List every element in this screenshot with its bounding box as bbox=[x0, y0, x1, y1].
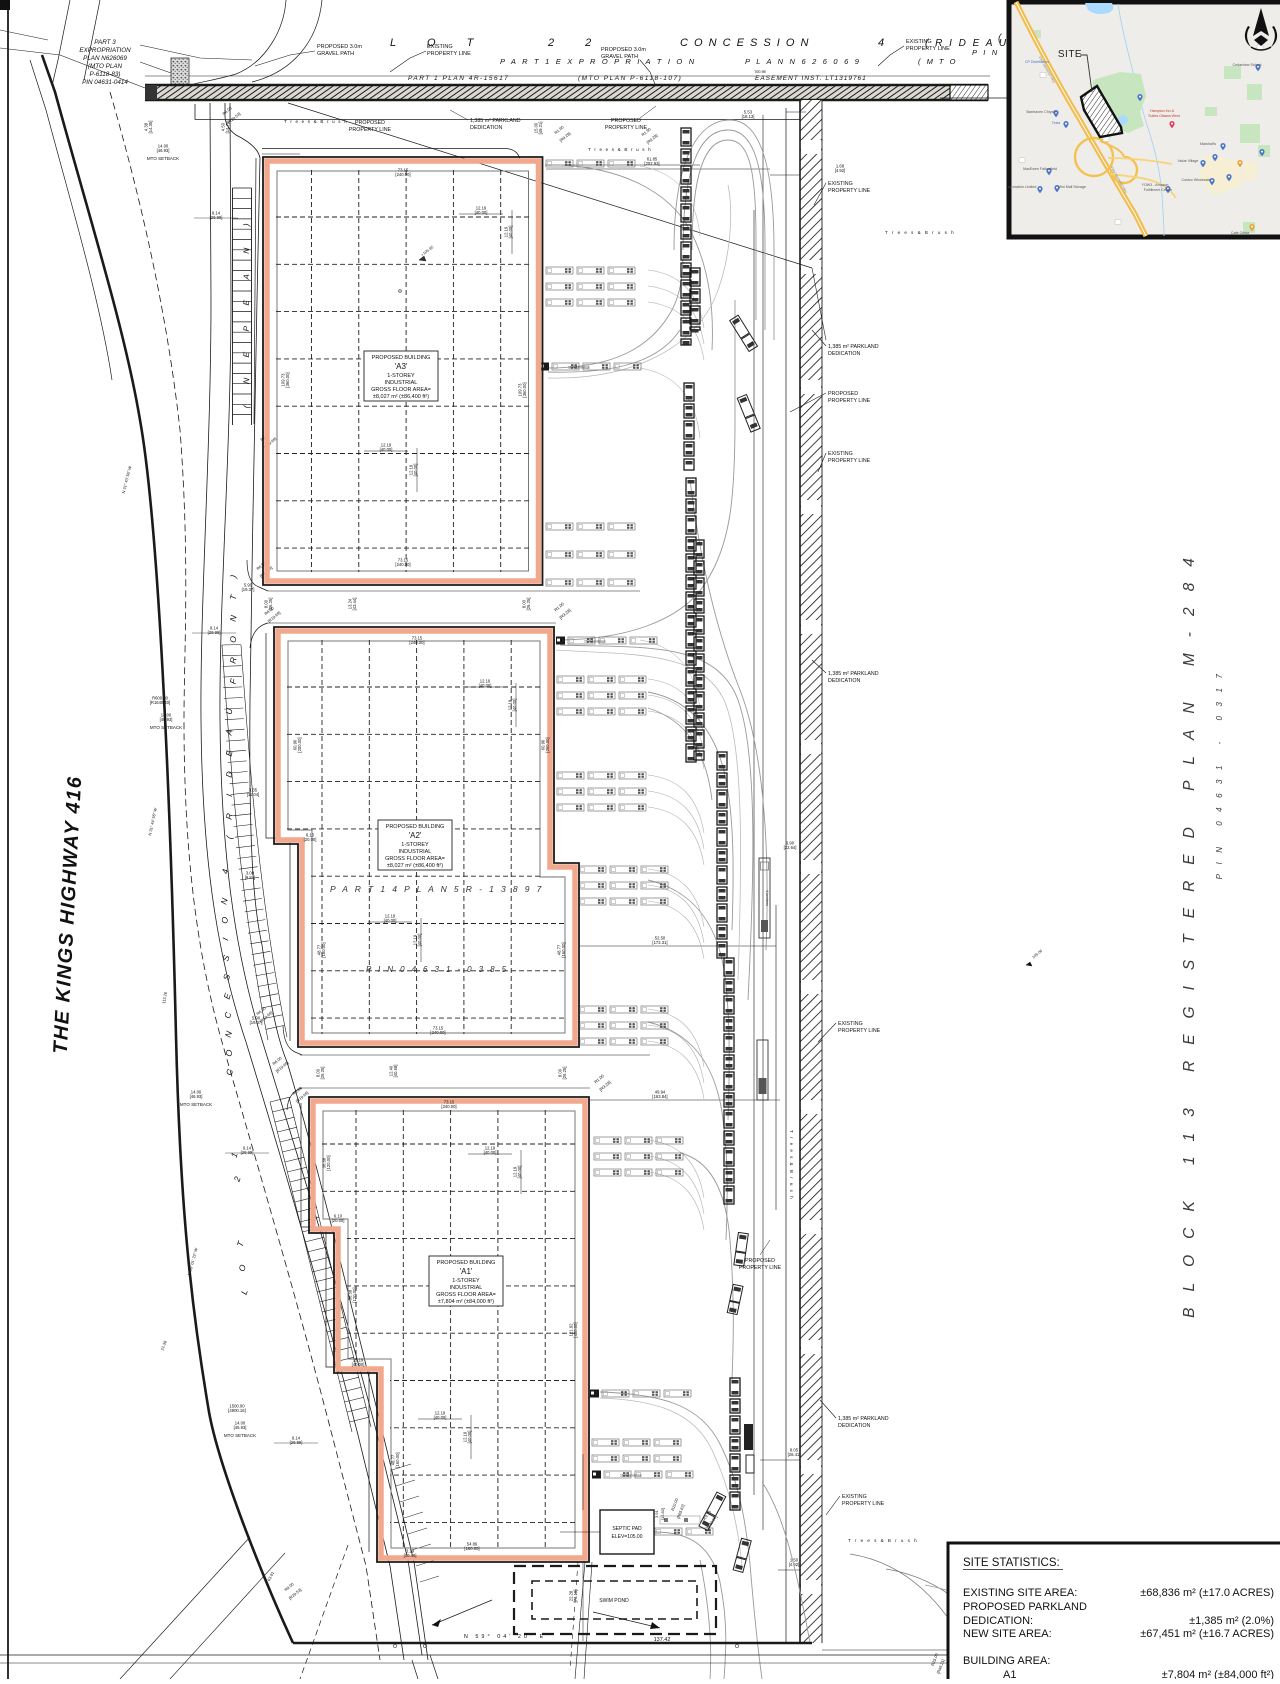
svg-text:PIN 04631 - 0317: PIN 04631 - 0317 bbox=[1215, 665, 1224, 880]
svg-text:[26.25]: [26.25] bbox=[320, 1067, 325, 1080]
svg-text:[10.46]: [10.46] bbox=[404, 1553, 417, 1558]
svg-text:GROSS FLOOR AREA=: GROSS FLOOR AREA= bbox=[371, 387, 431, 393]
svg-text:±7,804 m² (±84,000 ft²): ±7,804 m² (±84,000 ft²) bbox=[1162, 1669, 1274, 1679]
svg-text:700.98: 700.98 bbox=[754, 70, 766, 74]
svg-text:PIN 04631-0414: PIN 04631-0414 bbox=[82, 79, 128, 86]
svg-text:[46.93]: [46.93] bbox=[157, 148, 170, 153]
svg-text:Mini Mall Storage: Mini Mall Storage bbox=[1058, 185, 1086, 189]
svg-text:PROPOSED: PROPOSED bbox=[355, 120, 385, 126]
svg-text:[200.00]: [200.00] bbox=[545, 737, 550, 752]
svg-text:PART 3: PART 3 bbox=[94, 39, 116, 46]
svg-text:[19.37]: [19.37] bbox=[242, 587, 255, 592]
svg-text:[26.25]: [26.25] bbox=[562, 1067, 567, 1080]
svg-text:orporation Limited: orporation Limited bbox=[1008, 185, 1037, 189]
svg-text:1-STOREY: 1-STOREY bbox=[452, 1278, 480, 1284]
svg-text:137.42: 137.42 bbox=[654, 1637, 671, 1643]
svg-text:1-STOREY: 1-STOREY bbox=[401, 842, 429, 848]
svg-text:PROPERTY LINE: PROPERTY LINE bbox=[828, 398, 871, 404]
svg-text:SWIM POND: SWIM POND bbox=[599, 1598, 629, 1604]
svg-text:MacEwen Fallowfield: MacEwen Fallowfield bbox=[1023, 167, 1057, 171]
svg-text:YOW3 - Amazon: YOW3 - Amazon bbox=[1142, 183, 1169, 187]
svg-text:DEDICATION: DEDICATION bbox=[828, 351, 860, 357]
svg-text:1-STOREY: 1-STOREY bbox=[387, 373, 415, 379]
svg-text:[26.41]: [26.41] bbox=[788, 1452, 801, 1457]
svg-text:GRAVEL PATH: GRAVEL PATH bbox=[317, 51, 354, 57]
svg-text:Value Village: Value Village bbox=[1178, 159, 1199, 163]
svg-text:A: A bbox=[242, 274, 252, 281]
svg-text:PROPOSED BUILDING: PROPOSED BUILDING bbox=[437, 1260, 496, 1266]
svg-text:SITE STATISTICS:: SITE STATISTICS: bbox=[963, 1557, 1060, 1569]
svg-text:N: N bbox=[242, 377, 251, 384]
svg-text:[20.00]: [20.00] bbox=[304, 837, 317, 842]
svg-text:±8,027 m² (±86,400 ft²): ±8,027 m² (±86,400 ft²) bbox=[387, 863, 443, 869]
svg-text:MTO SETBACK: MTO SETBACK bbox=[224, 1433, 256, 1438]
svg-text:PROPERTY LINE: PROPERTY LINE bbox=[838, 1028, 881, 1034]
svg-text:EXISTING: EXISTING bbox=[828, 181, 853, 187]
svg-text:Fulfillment Center: Fulfillment Center bbox=[1144, 188, 1173, 192]
svg-text:INDUSTRIAL: INDUSTRIAL bbox=[385, 380, 418, 386]
svg-text:PROPOSED BUILDING: PROPOSED BUILDING bbox=[372, 355, 431, 361]
svg-text:PLAN N626069: PLAN N626069 bbox=[83, 55, 127, 62]
svg-text:[11.04]: [11.04] bbox=[247, 792, 260, 797]
svg-text:[4900.16]: [4900.16] bbox=[228, 1408, 245, 1413]
svg-text:N 59° 04′ 20″ E: N 59° 04′ 20″ E bbox=[464, 1634, 546, 1640]
svg-text:PROPERTY LINE: PROPERTY LINE bbox=[349, 127, 392, 133]
svg-text:[160.00]: [160.00] bbox=[321, 942, 326, 957]
svg-text:[240.00]: [240.00] bbox=[409, 640, 424, 645]
svg-text:MTO SETBACK: MTO SETBACK bbox=[180, 1102, 212, 1107]
svg-text:[160.00]: [160.00] bbox=[395, 1452, 400, 1467]
svg-text:'A1': 'A1' bbox=[460, 1267, 473, 1276]
svg-text:1,385 m² PARKLAND: 1,385 m² PARKLAND bbox=[828, 344, 879, 350]
svg-text:BUILDING AREA:: BUILDING AREA: bbox=[963, 1655, 1050, 1667]
svg-text:11 4-tandems: 11 4-tandems bbox=[568, 366, 590, 370]
svg-text:BLOCK 113 REGISTERED PLA: BLOCK 113 REGISTERED PLAN M-284 bbox=[1181, 542, 1198, 1318]
svg-text:PROPOSED BUILDING: PROPOSED BUILDING bbox=[386, 824, 445, 830]
svg-text:T r e e s & B r u s h: T r e e s & B r u s h bbox=[789, 1130, 794, 1200]
svg-text:4: 4 bbox=[878, 37, 884, 49]
svg-text:[360.00]: [360.00] bbox=[522, 382, 527, 397]
svg-text:T r e e s & B r u s h: T r e e s & B r u s h bbox=[885, 230, 955, 235]
svg-text:1,385 m² PARKLAND: 1,385 m² PARKLAND bbox=[838, 1416, 889, 1422]
svg-text:[120.00]: [120.00] bbox=[326, 1155, 331, 1170]
svg-text:GROSS FLOOR AREA=: GROSS FLOOR AREA= bbox=[385, 856, 445, 862]
svg-text:( M T O: ( M T O bbox=[918, 57, 957, 66]
svg-text:P L A N N 6 2 6 0 6 9: P L A N N 6 2 6 0 6 9 bbox=[745, 57, 861, 66]
svg-text:EXISTING: EXISTING bbox=[842, 1494, 867, 1500]
svg-text:[202.93]: [202.93] bbox=[644, 161, 659, 166]
svg-text:[360.00]: [360.00] bbox=[285, 372, 290, 387]
svg-text:Hampton Inn &: Hampton Inn & bbox=[1150, 109, 1175, 113]
svg-text:INDUSTRIAL: INDUSTRIAL bbox=[450, 1285, 483, 1291]
svg-text:SITE: SITE bbox=[1058, 49, 1082, 60]
svg-text:[73.10]: [73.10] bbox=[573, 1590, 578, 1603]
svg-text:[240.00]: [240.00] bbox=[430, 1030, 445, 1035]
svg-text:[29.99]: [29.99] bbox=[210, 215, 223, 220]
svg-text:[240.00]: [240.00] bbox=[395, 562, 410, 567]
svg-text:EXPROPRIATION: EXPROPRIATION bbox=[79, 47, 131, 54]
svg-text:[46.93]: [46.93] bbox=[190, 1094, 203, 1099]
svg-text:PROPERTY LINE: PROPERTY LINE bbox=[906, 46, 950, 52]
svg-text:[29.99]: [29.99] bbox=[208, 630, 221, 635]
svg-text:Barrhaven Chrysler: Barrhaven Chrysler bbox=[1027, 110, 1059, 114]
svg-text:Tesla: Tesla bbox=[1052, 121, 1060, 125]
svg-text:[22.64]: [22.64] bbox=[784, 845, 797, 850]
svg-text:P I N 0 4 6 3 1 - 0 3 8: P I N 0 4 6 3 1 - 0 3 8 5 bbox=[366, 965, 508, 974]
svg-text:[240.00]: [240.00] bbox=[395, 172, 410, 177]
svg-text:PROPERTY LINE: PROPERTY LINE bbox=[828, 458, 871, 464]
svg-text:±8,027 m² (±86,400 ft²): ±8,027 m² (±86,400 ft²) bbox=[373, 394, 429, 400]
svg-text:Suites Ottawa West: Suites Ottawa West bbox=[1148, 114, 1180, 118]
svg-text:EXISTING: EXISTING bbox=[828, 451, 853, 457]
svg-text:EXISTING: EXISTING bbox=[427, 44, 453, 50]
svg-text:P A R T 1 4 P L A N 5: P A R T 1 4 P L A N 5 R - 1 3 8 9 7 bbox=[330, 884, 544, 894]
svg-text:PROPOSED: PROPOSED bbox=[745, 1258, 775, 1264]
svg-text:EXISTING: EXISTING bbox=[906, 39, 932, 45]
svg-text:A1: A1 bbox=[1003, 1669, 1016, 1679]
svg-text:EXISTING SITE AREA:: EXISTING SITE AREA: bbox=[963, 1587, 1077, 1599]
svg-text:±67,451 m² (±16.7 ACRES): ±67,451 m² (±16.7 ACRES) bbox=[1140, 1628, 1274, 1640]
svg-text:11 4-tandems: 11 4-tandems bbox=[620, 1474, 642, 1478]
svg-text:PROPOSED: PROPOSED bbox=[611, 118, 641, 124]
svg-text:[14.35]: [14.35] bbox=[148, 121, 153, 134]
svg-text:[9.84]: [9.84] bbox=[245, 875, 255, 880]
svg-text:GROSS FLOOR AREA=: GROSS FLOOR AREA= bbox=[436, 1292, 496, 1298]
svg-text:2 2: 2 2 bbox=[547, 37, 605, 49]
svg-text:[29.99]: [29.99] bbox=[241, 1150, 254, 1155]
svg-text:±7,804 m² (±84,000 ft²): ±7,804 m² (±84,000 ft²) bbox=[438, 1299, 494, 1305]
svg-text:[240.00]: [240.00] bbox=[441, 1104, 456, 1109]
svg-text:[R1640.40]: [R1640.40] bbox=[150, 700, 171, 705]
svg-text:[29.99]: [29.99] bbox=[290, 1440, 303, 1445]
svg-text:[163.84]: [163.84] bbox=[652, 1094, 667, 1099]
svg-text:PROPERTY LINE: PROPERTY LINE bbox=[739, 1265, 782, 1271]
svg-text:PROPOSED: PROPOSED bbox=[828, 391, 858, 397]
svg-text:3.91: 3.91 bbox=[654, 1509, 659, 1518]
svg-text:[20.00]: [20.00] bbox=[332, 1218, 345, 1223]
svg-text:[46.93]: [46.93] bbox=[160, 717, 173, 722]
svg-text:'A3': 'A3' bbox=[395, 362, 408, 371]
svg-text:GRAVEL PATH: GRAVEL PATH bbox=[601, 54, 638, 60]
svg-text:(MTO PLAN: (MTO PLAN bbox=[88, 63, 123, 70]
svg-text:MTO SETBACK: MTO SETBACK bbox=[150, 725, 182, 730]
svg-text:SEPTIC PAD: SEPTIC PAD bbox=[612, 1526, 642, 1532]
svg-text:[4.92]: [4.92] bbox=[835, 168, 845, 173]
svg-text:Cedarview School: Cedarview School bbox=[1233, 63, 1262, 67]
svg-text:NEW SITE AREA:: NEW SITE AREA: bbox=[963, 1628, 1052, 1640]
svg-text:PROPERTY LINE: PROPERTY LINE bbox=[427, 51, 471, 57]
svg-text:Marshall's: Marshall's bbox=[1200, 142, 1216, 146]
svg-text:[26.25]: [26.25] bbox=[526, 598, 531, 611]
svg-text:[400.00]: [400.00] bbox=[573, 1322, 578, 1337]
svg-text:INDUSTRIAL: INDUSTRIAL bbox=[399, 849, 432, 855]
svg-text:EXISTING: EXISTING bbox=[838, 1021, 863, 1027]
svg-text:[160.00]: [160.00] bbox=[561, 942, 566, 957]
svg-text:C O N C E S S I O N: C O N C E S S I O N bbox=[680, 37, 810, 49]
svg-text:[49.21]: [49.21] bbox=[538, 122, 543, 135]
svg-text:P A R T 1 E X P R O P R I: P A R T 1 E X P R O P R I A T I O N bbox=[500, 57, 696, 66]
svg-text:PROPERTY LINE: PROPERTY LINE bbox=[605, 125, 648, 131]
svg-text:1,385 m² PARKLAND: 1,385 m² PARKLAND bbox=[470, 118, 521, 124]
svg-text:PROPERTY LINE: PROPERTY LINE bbox=[828, 188, 871, 194]
svg-text:±1,385 m² (2.0%): ±1,385 m² (2.0%) bbox=[1189, 1615, 1274, 1627]
svg-text:Cafe Crista: Cafe Crista bbox=[1231, 231, 1249, 235]
svg-text:P I N: P I N bbox=[972, 48, 999, 57]
svg-text:[12.82]: [12.82] bbox=[660, 1508, 665, 1520]
svg-text:[18.13]: [18.13] bbox=[742, 114, 755, 119]
svg-text:11 4-tandems: 11 4-tandems bbox=[584, 640, 606, 644]
svg-text:DEDICATION:: DEDICATION: bbox=[963, 1615, 1033, 1627]
svg-text:[40.00]: [40.00] bbox=[352, 1362, 365, 1367]
svg-text:PROPOSED 3.0m: PROPOSED 3.0m bbox=[601, 47, 646, 53]
svg-text:DEDICATION: DEDICATION bbox=[828, 678, 860, 684]
svg-text:'A2': 'A2' bbox=[409, 831, 422, 840]
svg-text:4-tandems: 4-tandems bbox=[765, 890, 769, 906]
svg-text:Costco Wholesale: Costco Wholesale bbox=[1182, 178, 1211, 182]
svg-text:1,385 m² PARKLAND: 1,385 m² PARKLAND bbox=[828, 671, 879, 677]
svg-text:MTO SETBACK: MTO SETBACK bbox=[147, 156, 179, 161]
svg-text:[120.00]: [120.00] bbox=[352, 1287, 357, 1302]
svg-text:T r e e s & B r u s h: T r e e s & B r u s h bbox=[588, 147, 652, 152]
svg-text:[172.31]: [172.31] bbox=[652, 940, 667, 945]
svg-text:PROPOSED 3.0m: PROPOSED 3.0m bbox=[317, 44, 362, 50]
svg-text:PROPOSED PARKLAND: PROPOSED PARKLAND bbox=[963, 1601, 1087, 1613]
svg-text:[200.00]: [200.00] bbox=[297, 737, 302, 752]
svg-text:[43.44]: [43.44] bbox=[352, 598, 357, 611]
svg-text:DEDICATION: DEDICATION bbox=[470, 125, 502, 131]
svg-text:±68,836 m² (±17.0 ACRES): ±68,836 m² (±17.0 ACRES) bbox=[1140, 1587, 1274, 1599]
svg-text:T r e e s & B r u s h: T r e e s & B r u s h bbox=[284, 119, 348, 124]
svg-text:[180.00]: [180.00] bbox=[464, 1546, 479, 1551]
svg-text:[45.93]: [45.93] bbox=[234, 1425, 247, 1430]
svg-text:T r e e s & B r u s h: T r e e s & B r u s h bbox=[848, 1538, 918, 1543]
svg-text:N: N bbox=[242, 247, 251, 254]
svg-text:ELEV=105.00: ELEV=105.00 bbox=[612, 1534, 643, 1540]
svg-text:DEDICATION: DEDICATION bbox=[838, 1423, 870, 1429]
svg-text:[40.68]: [40.68] bbox=[393, 1065, 398, 1078]
svg-text:PROPERTY LINE: PROPERTY LINE bbox=[842, 1501, 885, 1507]
